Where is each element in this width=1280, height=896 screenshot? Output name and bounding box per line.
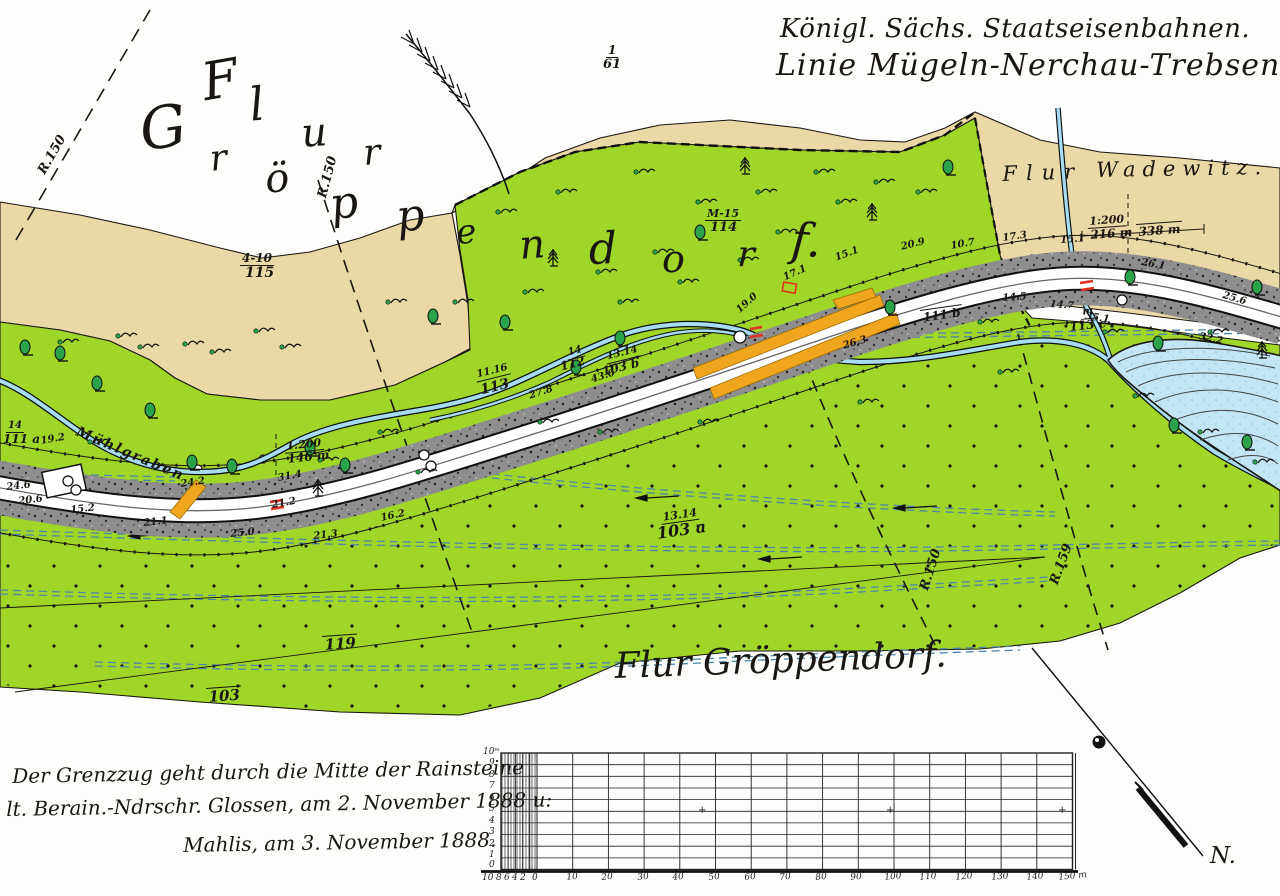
north-arrow <box>1032 648 1203 856</box>
tick-label: 9 <box>489 759 495 768</box>
tick-label: 120 <box>955 872 973 883</box>
tick-label: 100 <box>884 872 902 883</box>
scale-grid <box>481 753 1078 872</box>
fracbot-label: 216 m <box>1089 226 1134 241</box>
fractop-label: 4-10 <box>240 252 274 266</box>
plus-label: + <box>1058 806 1066 816</box>
tick-label: 1 <box>489 851 495 860</box>
tick-label: 110 <box>919 872 937 883</box>
tick-label: 7 <box>489 782 495 791</box>
letter-label: e <box>455 215 477 250</box>
tick-label: 80 <box>815 873 827 883</box>
tick-label: 2 <box>489 840 495 849</box>
tick-label: 6 <box>489 794 495 803</box>
overline-label: 119 <box>322 634 358 653</box>
meas-label: 14.5 <box>1002 292 1027 304</box>
railway-title-line2: Linie Mügeln-Nerchau-Trebsen. <box>776 48 1280 83</box>
overline-label: 338 m <box>1136 221 1183 238</box>
tick-label: 10 <box>482 874 493 883</box>
tick-label: 60 <box>744 873 756 883</box>
tick-label: 8 <box>489 771 495 780</box>
tick-label: 90 <box>850 873 862 883</box>
tick-label: 140 <box>1026 872 1044 883</box>
meas-label: 14.7 <box>1049 300 1074 312</box>
fractop-label: 1 <box>606 44 618 58</box>
tick-label: 4 <box>489 817 495 826</box>
letter-label: G <box>136 96 190 160</box>
tick-label: 0 <box>489 861 495 870</box>
tick-label: 40 <box>672 873 684 883</box>
tick-label: 0 <box>532 874 538 883</box>
tick-label: 20 <box>601 873 613 883</box>
tick-label: 10 <box>566 873 578 883</box>
tick-label: 30 <box>637 873 649 883</box>
letter-label: n <box>518 224 546 266</box>
flur-wadewitz-word2: Wadewitz. <box>1096 155 1268 182</box>
tick-label: 50 <box>708 873 720 883</box>
tick-label: 5 <box>489 805 495 814</box>
overline-label: 103 <box>206 686 242 705</box>
map-sheet: Königl. Sächs. Staatseisenbahnen. Linie … <box>0 0 1280 896</box>
branch-symbol <box>401 30 509 194</box>
fracbot-label: 113 c <box>1068 317 1108 333</box>
tick-label: 10ᵐ <box>483 748 500 757</box>
tick-label: 130 <box>991 872 1009 883</box>
letter-label: d <box>588 227 618 272</box>
letter-label: u <box>300 112 328 154</box>
flur-wadewitz-word1: Flur <box>1002 159 1084 186</box>
letter-label: r <box>737 237 755 274</box>
tick-label: 4 <box>512 874 518 883</box>
letter-label: p <box>394 193 427 240</box>
fracbot-label: 61 <box>602 58 622 71</box>
tick-label: 2 <box>520 874 526 883</box>
tick-label: 70 <box>779 873 791 883</box>
letter-label: o <box>662 240 685 278</box>
letter-label: r <box>208 140 229 178</box>
railway-title-line1: Königl. Sächs. Staatseisenbahnen. <box>780 14 1250 44</box>
plus-label: + <box>886 806 894 816</box>
tick-label: 8 <box>496 874 502 883</box>
tick-label: 6 <box>504 874 510 883</box>
letter-label: f. <box>790 216 823 264</box>
plus-label: + <box>698 806 706 816</box>
fracbot-label: 111 a <box>2 433 41 445</box>
fracbot-label: 114 <box>709 221 738 234</box>
fracbot-label: 115 <box>244 266 275 280</box>
letter-label: ö <box>263 157 291 199</box>
letter-label: r <box>362 135 382 172</box>
meas-label: 15.1 <box>1060 234 1085 246</box>
tick-label: 3 <box>489 828 495 837</box>
north-label: N. <box>1210 843 1236 869</box>
